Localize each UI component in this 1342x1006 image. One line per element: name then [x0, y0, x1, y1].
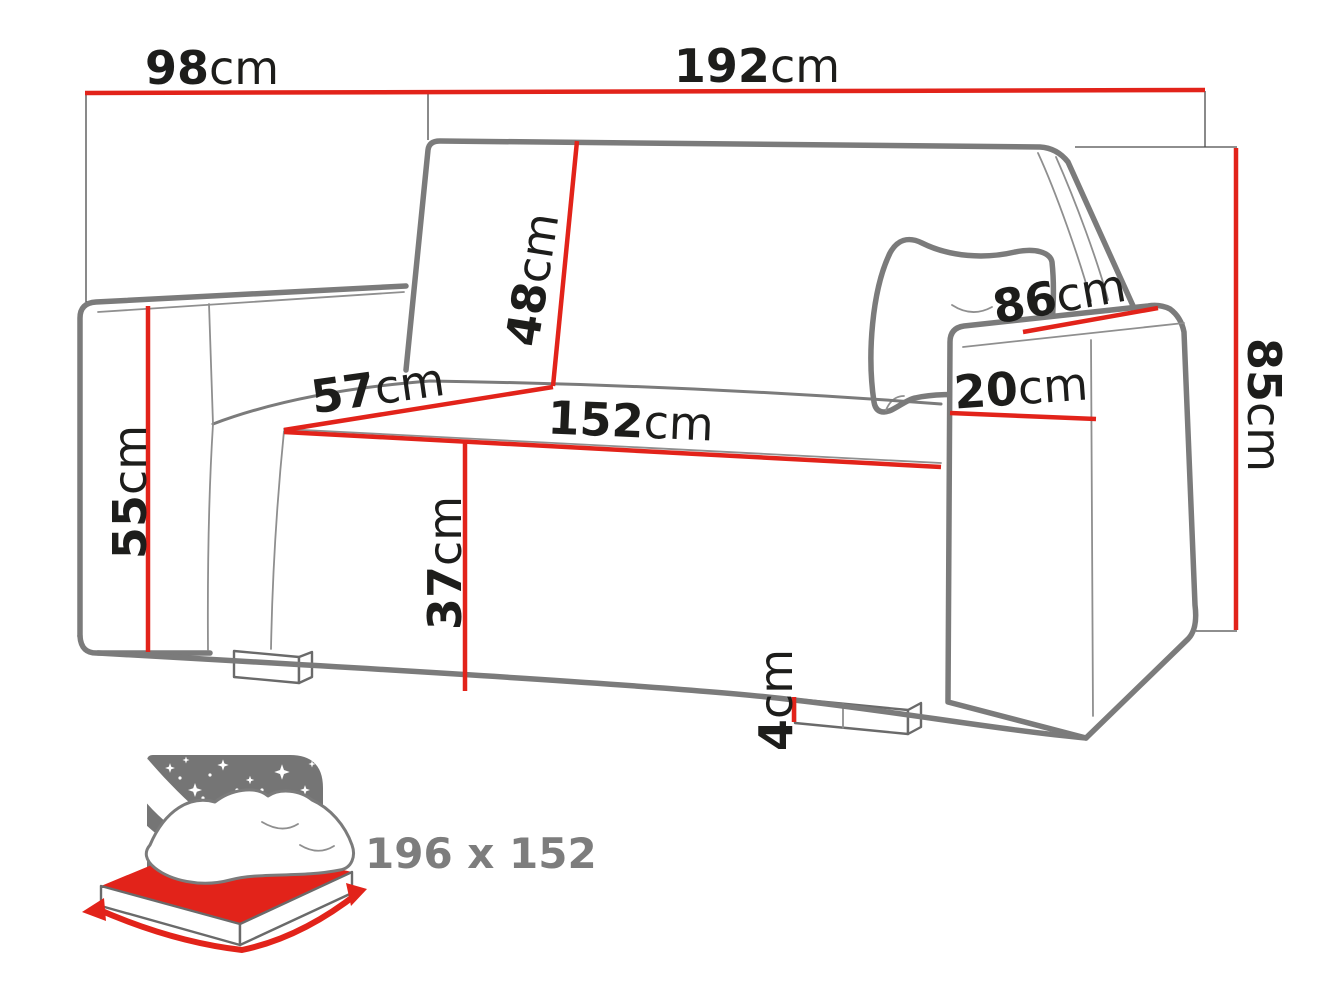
bed-icon	[82, 790, 367, 950]
sofa-dimension-diagram: 98cm 192cm 48cm 57cm 152cm 55cm 37cm 4cm…	[0, 0, 1342, 1006]
label-armrest-width: 20cm	[952, 356, 1090, 419]
sleeping-area-label: 196 x 152	[365, 829, 597, 878]
sleeping-area-icon: 196 x 152	[82, 750, 597, 950]
label-depth: 98cm	[145, 41, 279, 95]
arrowhead-left	[82, 898, 106, 921]
left-armrest-inner-edge	[208, 304, 213, 650]
label-leg-height: 4cm	[749, 649, 803, 751]
label-seat-height: 37cm	[418, 496, 472, 630]
label-seat-depth: 57cm	[308, 352, 448, 424]
label-width: 192cm	[674, 39, 840, 93]
seat-front-left-edge	[271, 431, 284, 649]
label-armrest-height: 55cm	[103, 425, 157, 559]
label-seat-width: 152cm	[547, 390, 715, 451]
label-total-height: 85cm	[1237, 338, 1291, 472]
diagram-canvas: 98cm 192cm 48cm 57cm 152cm 55cm 37cm 4cm…	[0, 0, 1342, 1006]
